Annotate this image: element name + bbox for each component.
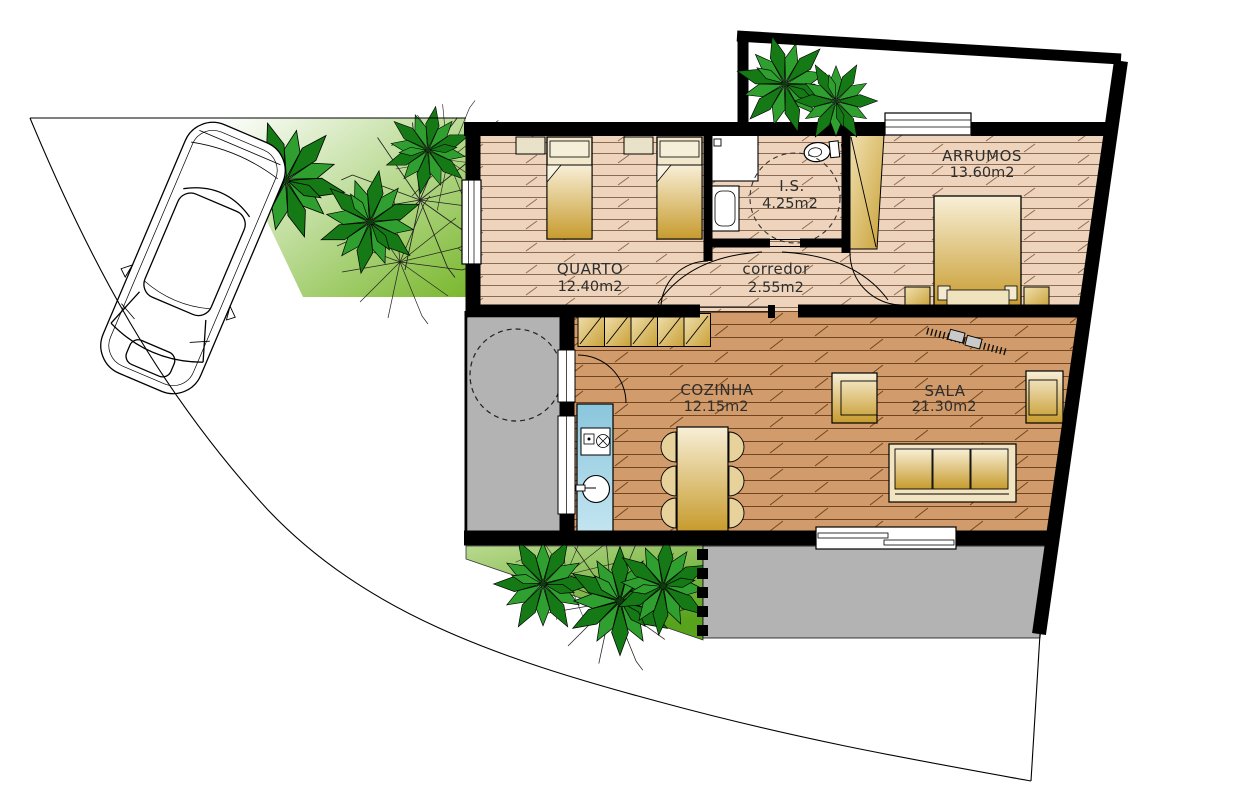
patio-left [468, 318, 563, 534]
label-corredor-area: 2.55m2 [748, 280, 804, 296]
floor-plan-canvas: QUARTO 12.40m2 I.S. 4.25m2 corredor 2.55… [0, 0, 1257, 793]
floor-plan-page: QUARTO 12.40m2 I.S. 4.25m2 corredor 2.55… [0, 0, 1257, 793]
label-sala-area: 21.30m2 [912, 399, 977, 415]
nightstand [1024, 287, 1049, 307]
dining-table [677, 427, 728, 531]
label-arrumos-area: 13.60m2 [950, 165, 1015, 181]
armchair [832, 373, 877, 423]
patio-bottom [703, 546, 1051, 638]
single-bed [657, 137, 702, 239]
label-cozinha-area: 12.15m2 [684, 399, 749, 415]
label-is-area: 4.25m2 [762, 196, 818, 212]
label-is: I.S. [779, 177, 804, 195]
shower [709, 133, 758, 181]
label-arrumos: ARRUMOS [942, 147, 1022, 165]
arrumos-window [885, 113, 971, 135]
single-bed [547, 137, 592, 239]
label-cozinha: COZINHA [680, 381, 753, 399]
nightstand [624, 137, 653, 154]
kitchen-counter [577, 404, 613, 534]
label-sala: SALA [924, 382, 965, 400]
label-quarto: QUARTO [557, 260, 623, 278]
sofa [889, 444, 1016, 502]
label-quarto-area: 12.40m2 [558, 279, 623, 295]
kitchen-cabinets [578, 314, 711, 347]
pillow [947, 290, 1009, 306]
wall-tab [768, 305, 775, 318]
nightstand [516, 137, 545, 154]
quarto-window [462, 180, 481, 264]
nightstand [905, 287, 930, 307]
stove [581, 428, 610, 455]
label-corredor: corredor [742, 260, 810, 278]
